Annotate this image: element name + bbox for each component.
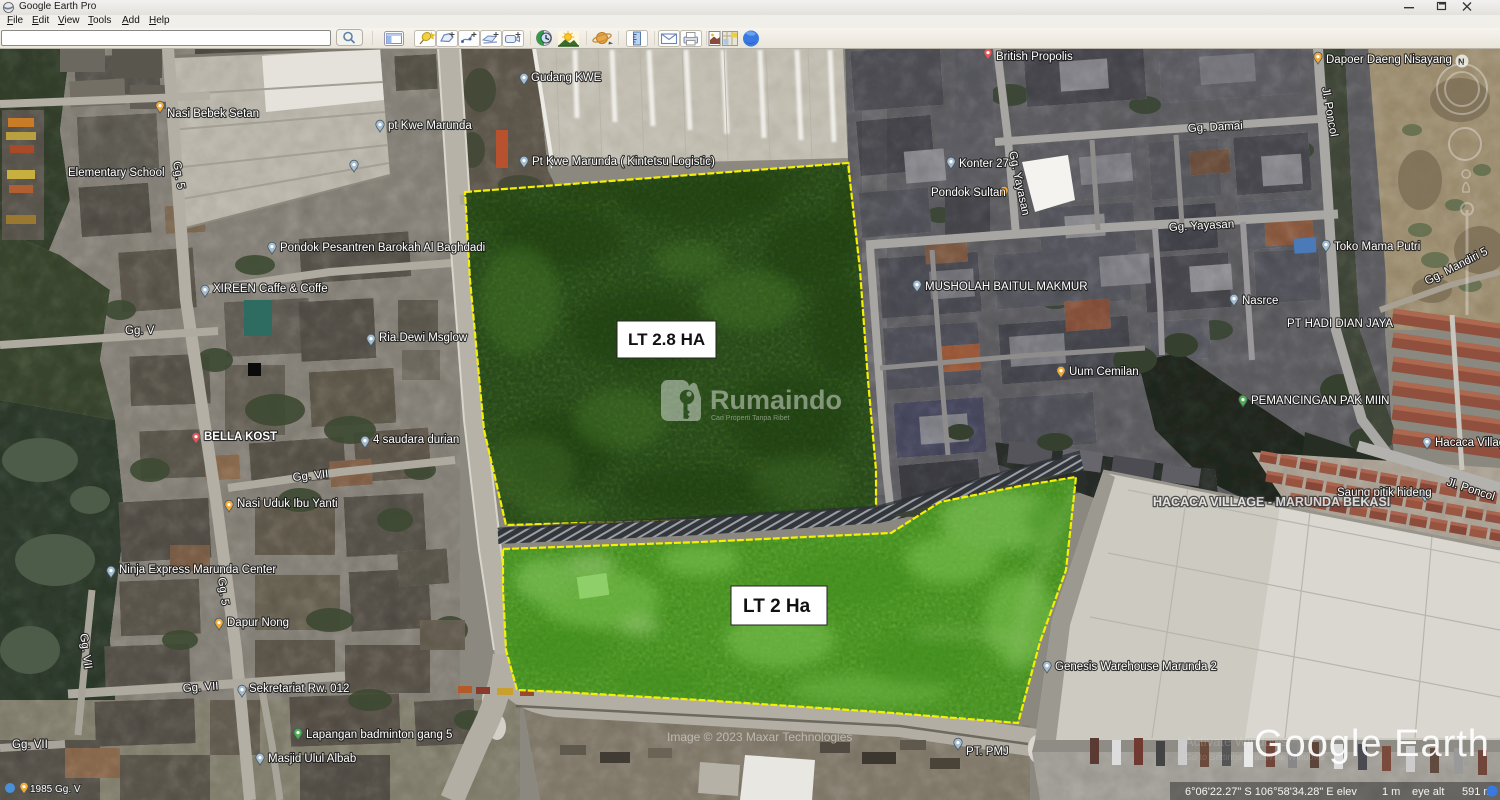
svg-text:Hacaca Village Ma: Hacaca Village Ma <box>1435 437 1500 449</box>
svg-text:Nasi Bebek Setan: Nasi Bebek Setan <box>167 108 259 120</box>
svg-text:pt Kwe Marunda: pt Kwe Marunda <box>388 120 472 132</box>
svg-text:6°06'22.27" S 106°58'34.28" E: 6°06'22.27" S 106°58'34.28" E elev <box>1185 786 1357 798</box>
svg-text:N: N <box>1458 57 1465 67</box>
svg-text:British Propolis: British Propolis <box>996 51 1073 63</box>
svg-text:Ninja Express Marunda Center: Ninja Express Marunda Center <box>119 564 276 576</box>
svg-text:Image © 2023 Maxar Technologie: Image © 2023 Maxar Technologies <box>667 730 852 744</box>
svg-text:BELLA KOST: BELLA KOST <box>204 431 277 443</box>
svg-text:Toko Mama Putri: Toko Mama Putri <box>1334 241 1420 253</box>
svg-text:PT. PMJ: PT. PMJ <box>966 746 1009 758</box>
svg-text:Elementary School: Elementary School <box>68 167 165 179</box>
svg-text:Uum Cemilan: Uum Cemilan <box>1069 366 1139 378</box>
svg-text:1985 Gg. V: 1985 Gg. V <box>30 784 81 795</box>
svg-text:Rumaindo: Rumaindo <box>710 385 842 415</box>
svg-text:Nasrce: Nasrce <box>1242 295 1278 307</box>
svg-text:Gudang KWE: Gudang KWE <box>531 72 602 84</box>
svg-text:Masjid Ulul Albab: Masjid Ulul Albab <box>268 753 356 765</box>
svg-text:Gg. VII: Gg. VII <box>12 739 48 751</box>
svg-text:Dapur Nong: Dapur Nong <box>227 617 289 629</box>
svg-text:HACACA VILLAGE - MARUNDA BEKAS: HACACA VILLAGE - MARUNDA BEKASI <box>1153 495 1390 509</box>
svg-text:Pondok Pesantren Barokah Al Ba: Pondok Pesantren Barokah Al Baghdadi <box>280 242 485 254</box>
svg-text:Gg. VII: Gg. VII <box>182 681 219 695</box>
svg-text:Nasi Uduk Ibu Yanti: Nasi Uduk Ibu Yanti <box>237 498 338 510</box>
svg-text:Lapangan badminton gang 5: Lapangan badminton gang 5 <box>306 729 452 741</box>
svg-text:4 saudara durian: 4 saudara durian <box>373 434 459 446</box>
svg-text:Ria.Dewi Msglow: Ria.Dewi Msglow <box>379 332 468 344</box>
svg-text:MUSHOLAH BAITUL MAKMUR: MUSHOLAH BAITUL MAKMUR <box>925 281 1088 293</box>
svg-text:LT 2.8 HA: LT 2.8 HA <box>628 330 705 349</box>
svg-text:Sekretariat Rw. 012: Sekretariat Rw. 012 <box>249 683 349 695</box>
svg-text:Konter 27: Konter 27 <box>959 158 1009 170</box>
svg-text:Genesis Warehouse Marunda 2: Genesis Warehouse Marunda 2 <box>1055 661 1217 673</box>
svg-text:Cari Properti Tanpa Ribet: Cari Properti Tanpa Ribet <box>711 415 790 422</box>
svg-text:Dapoer Daeng Nisayang: Dapoer Daeng Nisayang <box>1326 54 1452 66</box>
svg-text:1 m: 1 m <box>1382 786 1400 798</box>
svg-text:Pondok Sultan: Pondok Sultan <box>931 187 1006 199</box>
svg-text:PEMANCINGAN PAK MIIN: PEMANCINGAN PAK MIIN <box>1251 395 1389 407</box>
svg-text:Google Earth: Google Earth <box>1254 723 1490 765</box>
svg-text:PT HADI DIAN JAYA: PT HADI DIAN JAYA <box>1287 318 1393 330</box>
svg-text:Gg. V: Gg. V <box>125 325 155 337</box>
svg-text:eye alt: eye alt <box>1412 786 1444 798</box>
svg-text:Pt Kwe Marunda ( Kintetsu Log: Pt Kwe Marunda ( Kintetsu Logistic) <box>532 156 715 168</box>
svg-text:XIREEN Caffe & Coffe: XIREEN Caffe & Coffe <box>213 283 328 295</box>
svg-text:LT 2 Ha: LT 2 Ha <box>743 596 811 617</box>
